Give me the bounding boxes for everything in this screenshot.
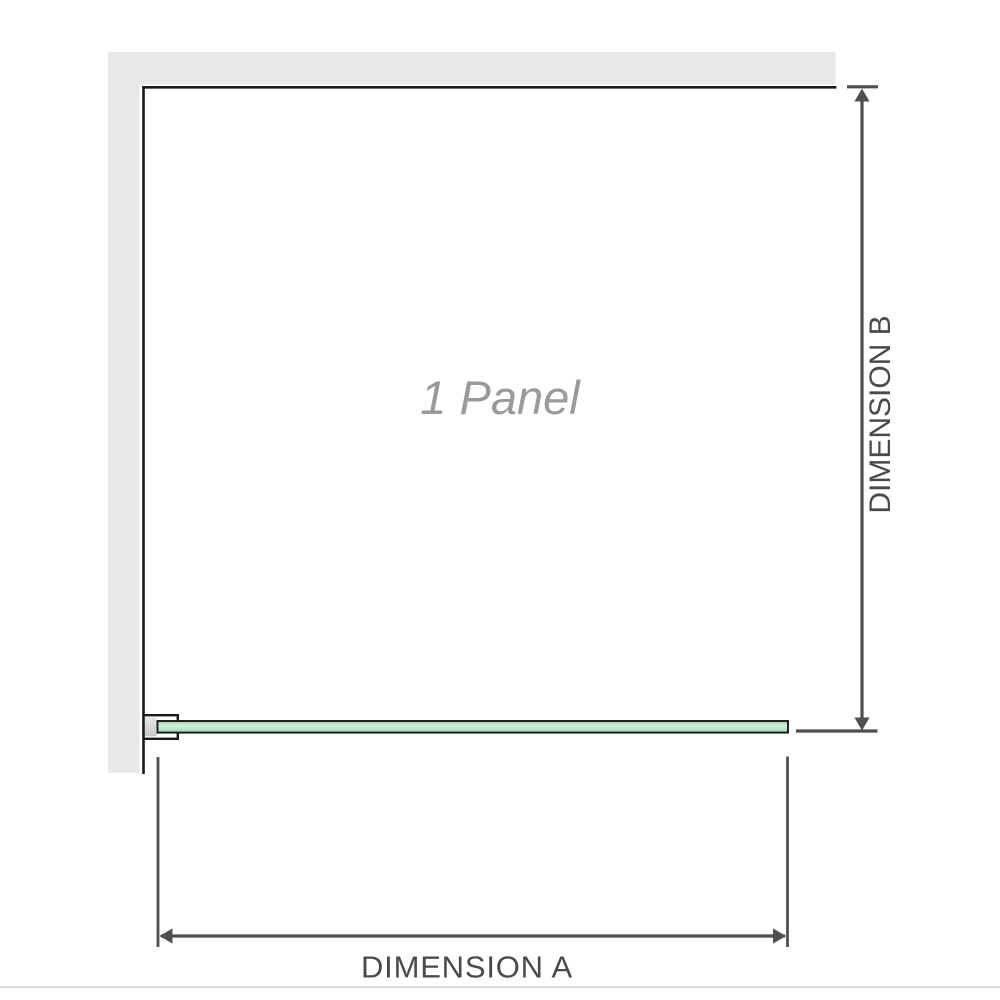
- svg-text:1 Panel: 1 Panel: [420, 371, 581, 424]
- svg-text:DIMENSION B: DIMENSION B: [864, 315, 897, 513]
- svg-text:DIMENSION A: DIMENSION A: [361, 950, 573, 985]
